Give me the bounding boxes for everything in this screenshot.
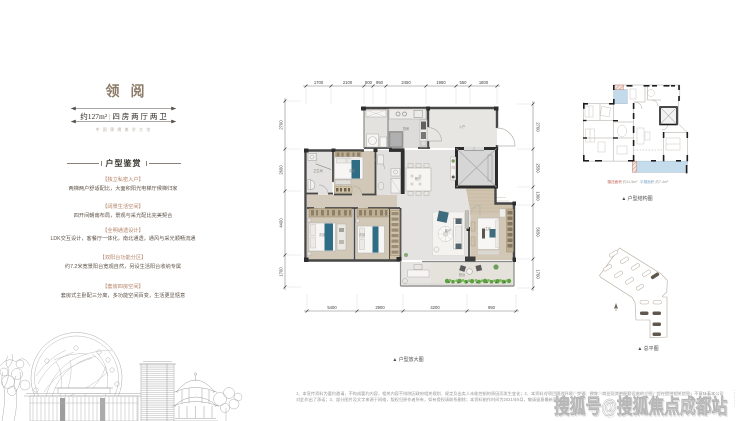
- svg-text:950: 950: [488, 305, 496, 310]
- svg-text:4200: 4200: [430, 305, 440, 310]
- svg-text:阳台: 阳台: [459, 272, 465, 277]
- svg-text:客厅: 客厅: [445, 228, 452, 233]
- svg-text:1300: 1300: [536, 191, 541, 201]
- svg-text:2900: 2900: [375, 305, 385, 310]
- svg-text:2100: 2100: [343, 80, 353, 85]
- svg-text:2700: 2700: [279, 120, 284, 130]
- svg-text:1700: 1700: [314, 80, 324, 85]
- svg-text:800: 800: [365, 80, 373, 85]
- svg-text:2700: 2700: [536, 122, 541, 132]
- svg-text:1700: 1700: [279, 267, 284, 277]
- svg-text:550: 550: [460, 80, 468, 85]
- svg-text:主卧: 主卧: [485, 226, 492, 231]
- svg-text:1800: 1800: [479, 80, 489, 85]
- svg-text:卫生间: 卫生间: [313, 168, 323, 173]
- svg-text:950: 950: [376, 80, 384, 85]
- svg-text:4400: 4400: [279, 218, 284, 228]
- svg-text:5400: 5400: [327, 305, 337, 310]
- svg-text:厨房: 厨房: [403, 126, 409, 131]
- svg-text:5650: 5650: [536, 227, 541, 237]
- svg-text:2550: 2550: [536, 163, 541, 173]
- svg-text:搜狐号@搜狐焦点成都站: 搜狐号@搜狐焦点成都站: [554, 394, 727, 417]
- svg-text:餐厅: 餐厅: [415, 176, 422, 181]
- svg-text:2450: 2450: [401, 80, 411, 85]
- svg-text:1700: 1700: [536, 269, 541, 279]
- svg-text:1950: 1950: [436, 80, 446, 85]
- svg-text:入户: 入户: [459, 124, 465, 129]
- svg-text:2600: 2600: [279, 165, 284, 175]
- svg-text:次卧: 次卧: [359, 232, 366, 237]
- svg-text:次卧: 次卧: [319, 232, 326, 237]
- svg-text:次卧: 次卧: [349, 168, 356, 173]
